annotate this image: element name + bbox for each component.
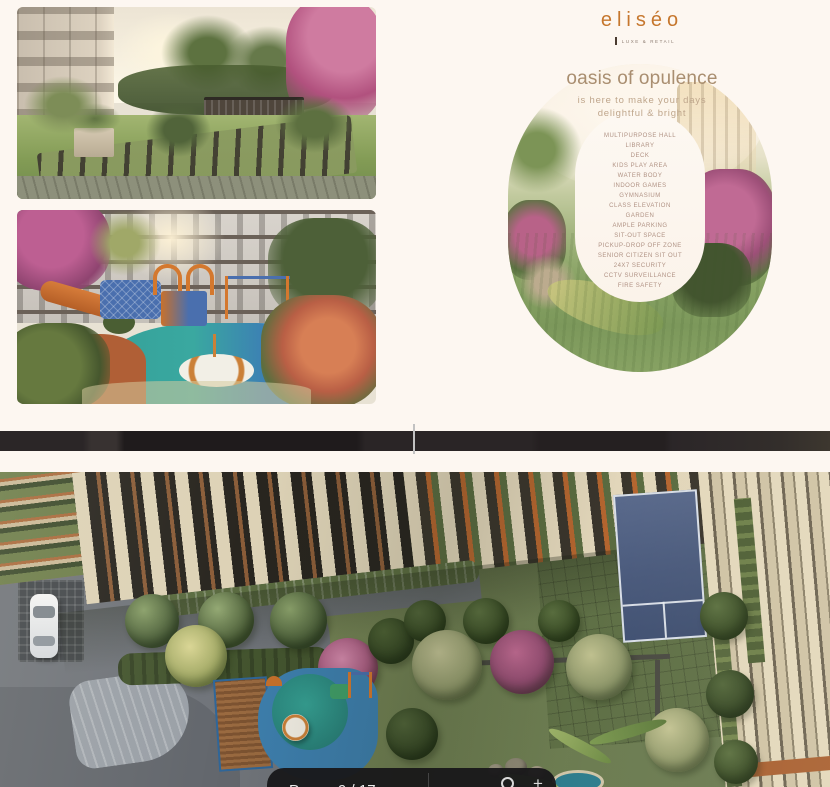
court-center-line (663, 602, 668, 638)
sage-tree (566, 634, 632, 700)
tree (706, 670, 754, 718)
merry-go-round (282, 714, 309, 741)
headline-block: oasis of opulence is here to make your d… (478, 68, 806, 120)
logo-divider-bar (615, 37, 617, 45)
pink-shrub (490, 630, 554, 694)
amenity-item: SIT-OUT SPACE (575, 231, 705, 241)
merry-go-round-pole (213, 334, 216, 357)
plus-icon[interactable]: + (533, 774, 543, 787)
play-arch (266, 676, 282, 686)
amenity-item: MULTIPURPOSE HALL (575, 131, 705, 141)
page-spine-divider (413, 424, 415, 454)
logo-wordmark: eliséo (512, 9, 772, 32)
page-indicator[interactable]: 9 / 17 (338, 782, 376, 787)
toolbar-divider (428, 773, 429, 787)
amenity-item: CCTV SURVEILLANCE (575, 271, 705, 281)
sage-tree (412, 630, 482, 700)
play-tower (161, 291, 208, 326)
tree (386, 708, 438, 760)
logo-tagline: LUXE & RETAIL (615, 37, 675, 45)
deck-floor (17, 176, 376, 199)
amenity-item: INDOOR GAMES (575, 181, 705, 191)
amenity-item: GYMNASIUM (575, 191, 705, 201)
tree (700, 592, 748, 640)
fern-plant (146, 103, 211, 157)
shrub (24, 76, 103, 134)
amenity-item: PICKUP-DROP OFF ZONE (575, 241, 705, 251)
toy-car (330, 684, 350, 699)
amenity-item: KIDS PLAY AREA (575, 161, 705, 171)
swing-post (348, 672, 351, 698)
page-title: oasis of opulence (478, 68, 806, 90)
tennis-court (613, 489, 707, 642)
amenity-item: DECK (575, 151, 705, 161)
car-windshield (33, 606, 55, 618)
aerial-view-page[interactable] (0, 472, 830, 787)
flipbook-viewer: eliséo LUXE & RETAIL oasis of opulence i… (0, 0, 830, 787)
fern-plant (275, 95, 354, 153)
swing-top-bar (225, 276, 290, 279)
playground-photo (17, 210, 376, 404)
amenities-list: MULTIPURPOSE HALLLIBRARYDECKKIDS PLAY AR… (575, 110, 705, 291)
tree (89, 210, 161, 276)
amenity-item: 24X7 SECURITY (575, 261, 705, 271)
amenity-item: SENIOR CITIZEN SIT OUT (575, 251, 705, 261)
tree (714, 740, 758, 784)
amenity-item: AMPLE PARKING (575, 221, 705, 231)
amenity-item: CLASS ELEVATION (575, 201, 705, 211)
car-rear-window (33, 636, 55, 646)
tree (270, 592, 327, 649)
tagline-line1: is here to make your days (478, 94, 806, 107)
amenity-item: FIRE SAFETY (575, 281, 705, 291)
page-label: Page (289, 782, 324, 787)
magnifier-icon[interactable] (501, 777, 514, 787)
amenity-item: GARDEN (575, 211, 705, 221)
amenity-item: WATER BODY (575, 171, 705, 181)
amenities-panel: MULTIPURPOSE HALLLIBRARYDECKKIDS PLAY AR… (575, 110, 705, 302)
tagline-line2: delightful & bright (478, 107, 806, 120)
pool (552, 770, 604, 787)
foreground-grass (82, 381, 312, 404)
sage-tree (645, 708, 709, 772)
swing-post (225, 276, 228, 319)
project-logo: eliséo LUXE & RETAIL (512, 9, 772, 50)
brochure-page-spread[interactable]: eliséo LUXE & RETAIL oasis of opulence i… (0, 0, 830, 431)
page-edge-strip (0, 431, 830, 451)
yellow-tree (165, 625, 227, 687)
viewer-toolbar[interactable]: Page 9 / 17 + (267, 768, 556, 787)
tree (538, 600, 580, 642)
swing-post (369, 672, 372, 698)
car (30, 594, 58, 658)
amenity-item: LIBRARY (575, 141, 705, 151)
garden-photo (17, 7, 376, 199)
climbing-net (100, 280, 161, 319)
